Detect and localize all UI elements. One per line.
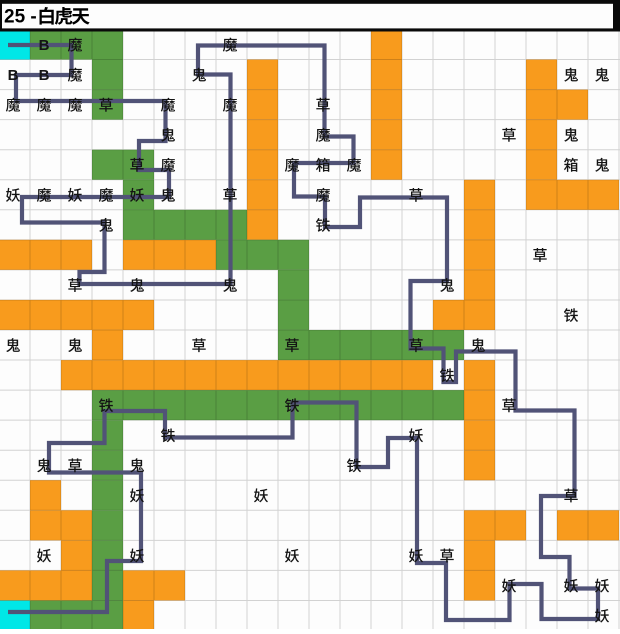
svg-text:B: B [8, 67, 19, 84]
svg-text:25 -: 25 - [4, 7, 37, 28]
svg-text:B: B [39, 67, 50, 84]
svg-text:B: B [39, 37, 50, 54]
